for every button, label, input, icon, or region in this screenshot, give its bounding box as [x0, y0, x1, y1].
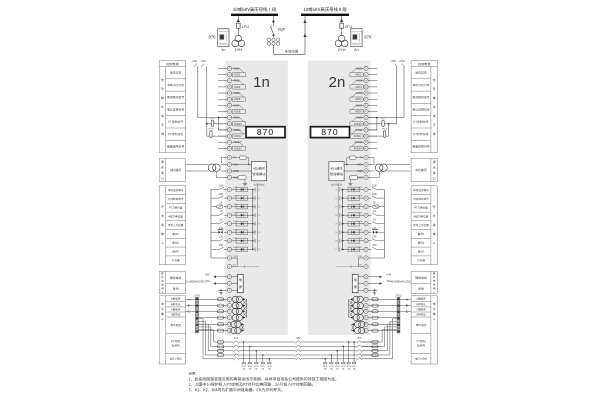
- svg-text:1n: 1n: [253, 74, 270, 91]
- svg-text:+KM: +KM: [386, 273, 391, 276]
- svg-text:2XK: 2XK: [219, 236, 224, 239]
- svg-text:4XD5: 4XD5: [356, 92, 363, 95]
- svg-text:SHD: SHD: [233, 177, 238, 180]
- svg-text:+KM: +KM: [191, 59, 197, 63]
- svg-text:485B: 485B: [357, 170, 363, 173]
- svg-text:1QF: 1QF: [219, 184, 224, 187]
- svg-text:870: 870: [321, 127, 338, 137]
- svg-text:2QF: 2QF: [219, 193, 224, 196]
- svg-text:4XD12: 4XD12: [234, 135, 242, 138]
- svg-text:4XD10: 4XD10: [234, 123, 242, 126]
- svg-text:870: 870: [209, 35, 217, 40]
- svg-text:870: 870: [257, 127, 274, 137]
- svg-text:4XD9: 4XD9: [233, 117, 240, 120]
- svg-text:-KM: -KM: [205, 280, 209, 283]
- svg-text:40-265VAC/DC: 40-265VAC/DC: [390, 280, 412, 284]
- svg-text:4XD13: 4XD13: [355, 141, 363, 144]
- svg-text:-KM: -KM: [386, 280, 390, 283]
- svg-text:4XD4: 4XD4: [234, 86, 241, 89]
- svg-text:SHD: SHD: [357, 177, 362, 180]
- svg-text:2YH: 2YH: [338, 47, 346, 52]
- svg-text:2n: 2n: [354, 47, 358, 52]
- svg-text:2G: 2G: [373, 219, 376, 222]
- svg-text:COM: COM: [357, 256, 362, 258]
- svg-text:4XD8: 4XD8: [355, 111, 362, 114]
- svg-text:4XD10: 4XD10: [354, 123, 362, 126]
- svg-text:2FU1: 2FU1: [382, 129, 388, 131]
- svg-text:1XK: 1XK: [372, 227, 377, 230]
- svg-text:-KM: -KM: [391, 59, 397, 63]
- svg-text:4XD14: 4XD14: [354, 147, 362, 150]
- svg-text:1FU: 1FU: [242, 24, 250, 29]
- svg-text:4XD3: 4XD3: [356, 80, 363, 83]
- svg-text:COM: COM: [233, 256, 238, 258]
- svg-text:40-265VAC/DC: 40-265VAC/DC: [184, 280, 206, 284]
- svg-text:K1: K1: [234, 336, 238, 340]
- svg-text:1QF: 1QF: [372, 184, 377, 187]
- svg-text:4XD8: 4XD8: [234, 111, 241, 114]
- svg-text:CK: CK: [373, 201, 377, 204]
- svg-text:4XD1: 4XD1: [356, 67, 363, 70]
- svg-text:3XK: 3XK: [372, 244, 377, 247]
- svg-text:TX: TX: [233, 157, 236, 160]
- svg-text:2G: 2G: [219, 219, 222, 222]
- svg-text:2XK: 2XK: [372, 236, 377, 239]
- svg-text:4XD7: 4XD7: [356, 104, 363, 107]
- svg-text:485A: 485A: [233, 164, 239, 167]
- svg-text:485B: 485B: [233, 170, 239, 173]
- svg-text:2n: 2n: [329, 74, 346, 91]
- svg-text:1YH: 1YH: [234, 47, 242, 52]
- svg-text:4XD3: 4XD3: [233, 80, 240, 83]
- svg-text:4XD2: 4XD2: [234, 74, 241, 77]
- svg-text:1n: 1n: [221, 47, 225, 52]
- svg-text:2FU: 2FU: [345, 24, 353, 29]
- svg-text:870: 870: [364, 35, 372, 40]
- svg-text:3XK: 3XK: [219, 244, 224, 247]
- svg-text:4XD2: 4XD2: [355, 74, 362, 77]
- svg-text:4XD7: 4XD7: [233, 104, 240, 107]
- svg-text:4XD14: 4XD14: [234, 147, 242, 150]
- svg-text:1XK: 1XK: [219, 227, 224, 230]
- svg-text:2FU1: 2FU1: [208, 129, 214, 131]
- svg-text:TX: TX: [359, 157, 362, 160]
- svg-text:2XDU: 2XDU: [395, 295, 401, 297]
- svg-text:KM: KM: [296, 336, 301, 340]
- svg-text:4XD4: 4XD4: [355, 86, 362, 89]
- svg-text:4XD5: 4XD5: [233, 92, 240, 95]
- svg-text:+KM: +KM: [399, 59, 405, 63]
- svg-text:CK: CK: [219, 201, 223, 204]
- svg-text:1XDU: 1XDU: [194, 295, 200, 297]
- svg-text:B: B: [406, 304, 408, 308]
- svg-text:1G: 1G: [373, 210, 376, 213]
- svg-text:4XD6: 4XD6: [234, 98, 241, 101]
- svg-text:485A: 485A: [357, 164, 363, 167]
- svg-text:4XD12: 4XD12: [354, 135, 362, 138]
- svg-text:A: A: [406, 297, 408, 301]
- svg-text:1FU1: 1FU1: [210, 118, 216, 120]
- svg-text:K2: K2: [358, 336, 362, 340]
- svg-text:+KM: +KM: [205, 273, 210, 276]
- svg-text:1G: 1G: [219, 210, 222, 213]
- svg-text:4XD11: 4XD11: [355, 129, 363, 132]
- svg-text:4XD1: 4XD1: [233, 67, 240, 70]
- svg-text:-KM: -KM: [201, 59, 207, 63]
- svg-text:4XD6: 4XD6: [355, 98, 362, 101]
- svg-text:3QF: 3QF: [278, 27, 286, 32]
- svg-text:4XD9: 4XD9: [356, 117, 363, 120]
- svg-text:2QF: 2QF: [372, 193, 377, 196]
- svg-text:1FU1: 1FU1: [380, 118, 386, 120]
